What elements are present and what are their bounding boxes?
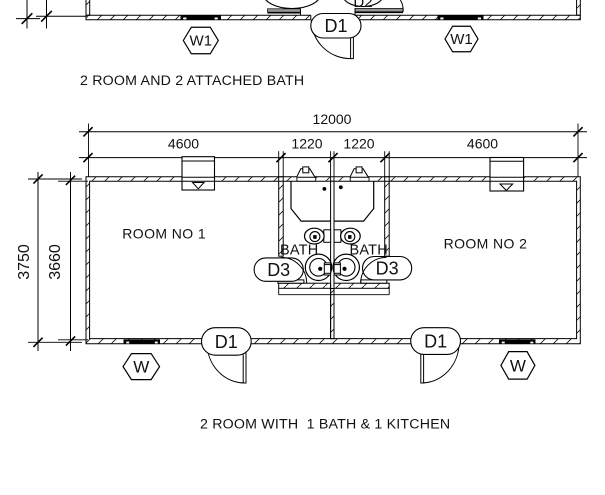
svg-text:W: W: [510, 356, 526, 375]
svg-text:2 ROOM WITH 1 BATH & 1 KITCHE: 2 ROOM WITH 1 BATH & 1 KITCHEN: [200, 417, 450, 433]
svg-text:D1: D1: [215, 332, 238, 352]
svg-text:ROOM NO 1: ROOM NO 1: [122, 225, 206, 241]
svg-text:W: W: [133, 358, 149, 377]
svg-text:BATH: BATH: [350, 243, 388, 259]
svg-text:1220: 1220: [343, 136, 374, 152]
svg-text:D1: D1: [424, 332, 447, 352]
svg-text:4600: 4600: [168, 136, 199, 152]
svg-text:3660: 3660: [47, 244, 64, 280]
svg-text:D3: D3: [267, 260, 290, 280]
svg-text:12000: 12000: [313, 111, 352, 127]
svg-text:ROOM NO 2: ROOM NO 2: [444, 235, 528, 251]
svg-text:W1: W1: [450, 31, 473, 48]
svg-text:2 ROOM AND 2 ATTACHED BATH: 2 ROOM AND 2 ATTACHED BATH: [80, 73, 304, 89]
svg-text:BATH: BATH: [280, 243, 318, 259]
svg-text:1220: 1220: [291, 136, 322, 152]
svg-text:3750: 3750: [16, 244, 33, 280]
svg-text:4600: 4600: [467, 136, 498, 152]
svg-text:D1: D1: [324, 16, 347, 36]
svg-text:W1: W1: [190, 33, 213, 50]
svg-text:D3: D3: [376, 259, 399, 279]
